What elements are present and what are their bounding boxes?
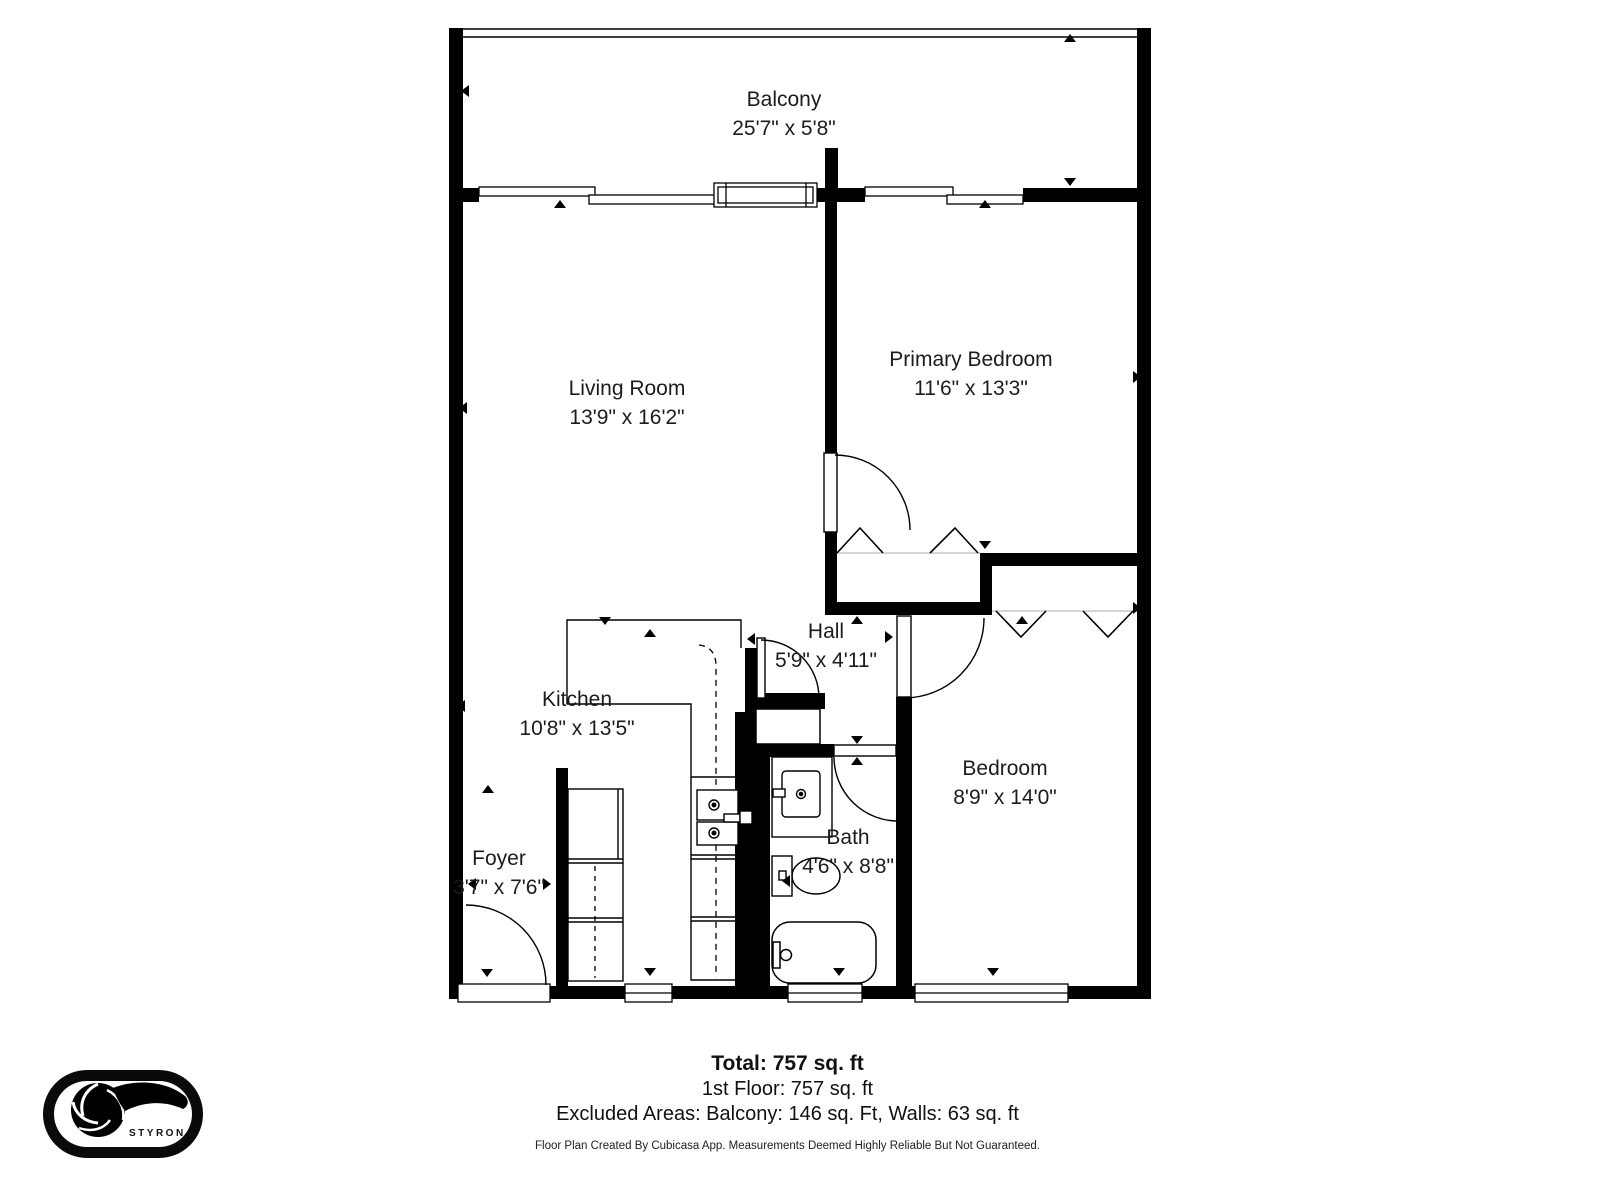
- room-label-living-room: Living Room 13'9" x 16'2": [569, 375, 686, 433]
- total-area: Total: 757 sq. ft: [0, 1052, 1575, 1076]
- kitchen-cabinets: [568, 789, 623, 981]
- bathtub: [772, 922, 876, 983]
- area-summary: Total: 757 sq. ft 1st Floor: 757 sq. ft …: [0, 1052, 1575, 1152]
- exterior-walls: [449, 28, 1151, 999]
- bedroom-closet: [992, 611, 1137, 637]
- room-label-hall: Hall 5'9" x 4'11": [775, 618, 877, 676]
- primary-closet: [837, 528, 980, 553]
- room-name: Balcony: [732, 86, 836, 115]
- tub-faucet: [773, 942, 780, 968]
- room-name: Hall: [775, 618, 877, 647]
- floor-plan-drawing: [0, 0, 1600, 1200]
- room-name: Primary Bedroom: [889, 346, 1052, 375]
- kitchen-faucet: [724, 814, 740, 822]
- excluded-areas: Excluded Areas: Balcony: 146 sq. Ft, Wal…: [0, 1103, 1575, 1126]
- room-dimensions: 4'6" x 8'8": [802, 853, 894, 882]
- room-name: Bath: [802, 824, 894, 853]
- entry-door: [466, 905, 546, 985]
- vanity-faucet: [773, 789, 785, 797]
- room-dimensions: 8'9" x 14'0": [953, 784, 1057, 813]
- room-label-primary-bedroom: Primary Bedroom 11'6" x 13'3": [889, 346, 1052, 404]
- company-logo: STYRON: [43, 1070, 203, 1158]
- room-dimensions: 13'9" x 16'2": [569, 404, 686, 433]
- room-label-bedroom: Bedroom 8'9" x 14'0": [953, 755, 1057, 813]
- room-dimensions: 10'8" x 13'5": [519, 715, 634, 744]
- entry-door-sill: [458, 984, 550, 1002]
- room-name: Kitchen: [519, 686, 634, 715]
- company-logo-graphic: STYRON: [43, 1070, 203, 1158]
- balcony-sliding-door: [714, 183, 817, 207]
- disclaimer-text: Floor Plan Created By Cubicasa App. Meas…: [0, 1140, 1575, 1152]
- balcony-railing: [456, 29, 1144, 37]
- room-label-kitchen: Kitchen 10'8" x 13'5": [519, 686, 634, 744]
- room-label-balcony: Balcony 25'7" x 5'8": [732, 86, 836, 144]
- room-name: Living Room: [569, 375, 686, 404]
- first-floor-area: 1st Floor: 757 sq. ft: [0, 1078, 1575, 1101]
- room-dimensions: 3'7" x 7'6": [453, 874, 545, 903]
- bedroom-door: [897, 616, 984, 698]
- room-name: Foyer: [453, 845, 545, 874]
- room-dimensions: 25'7" x 5'8": [732, 115, 836, 144]
- hall-closet: [756, 709, 820, 744]
- primary-bedroom-door: [824, 453, 910, 532]
- bath-door: [834, 745, 898, 821]
- room-name: Bedroom: [953, 755, 1057, 784]
- room-dimensions: 11'6" x 13'3": [889, 375, 1052, 404]
- logo-text: STYRON: [129, 1128, 186, 1139]
- room-dimensions: 5'9" x 4'11": [775, 647, 877, 676]
- room-label-foyer: Foyer 3'7" x 7'6": [453, 845, 545, 903]
- room-label-bath: Bath 4'6" x 8'8": [802, 824, 894, 882]
